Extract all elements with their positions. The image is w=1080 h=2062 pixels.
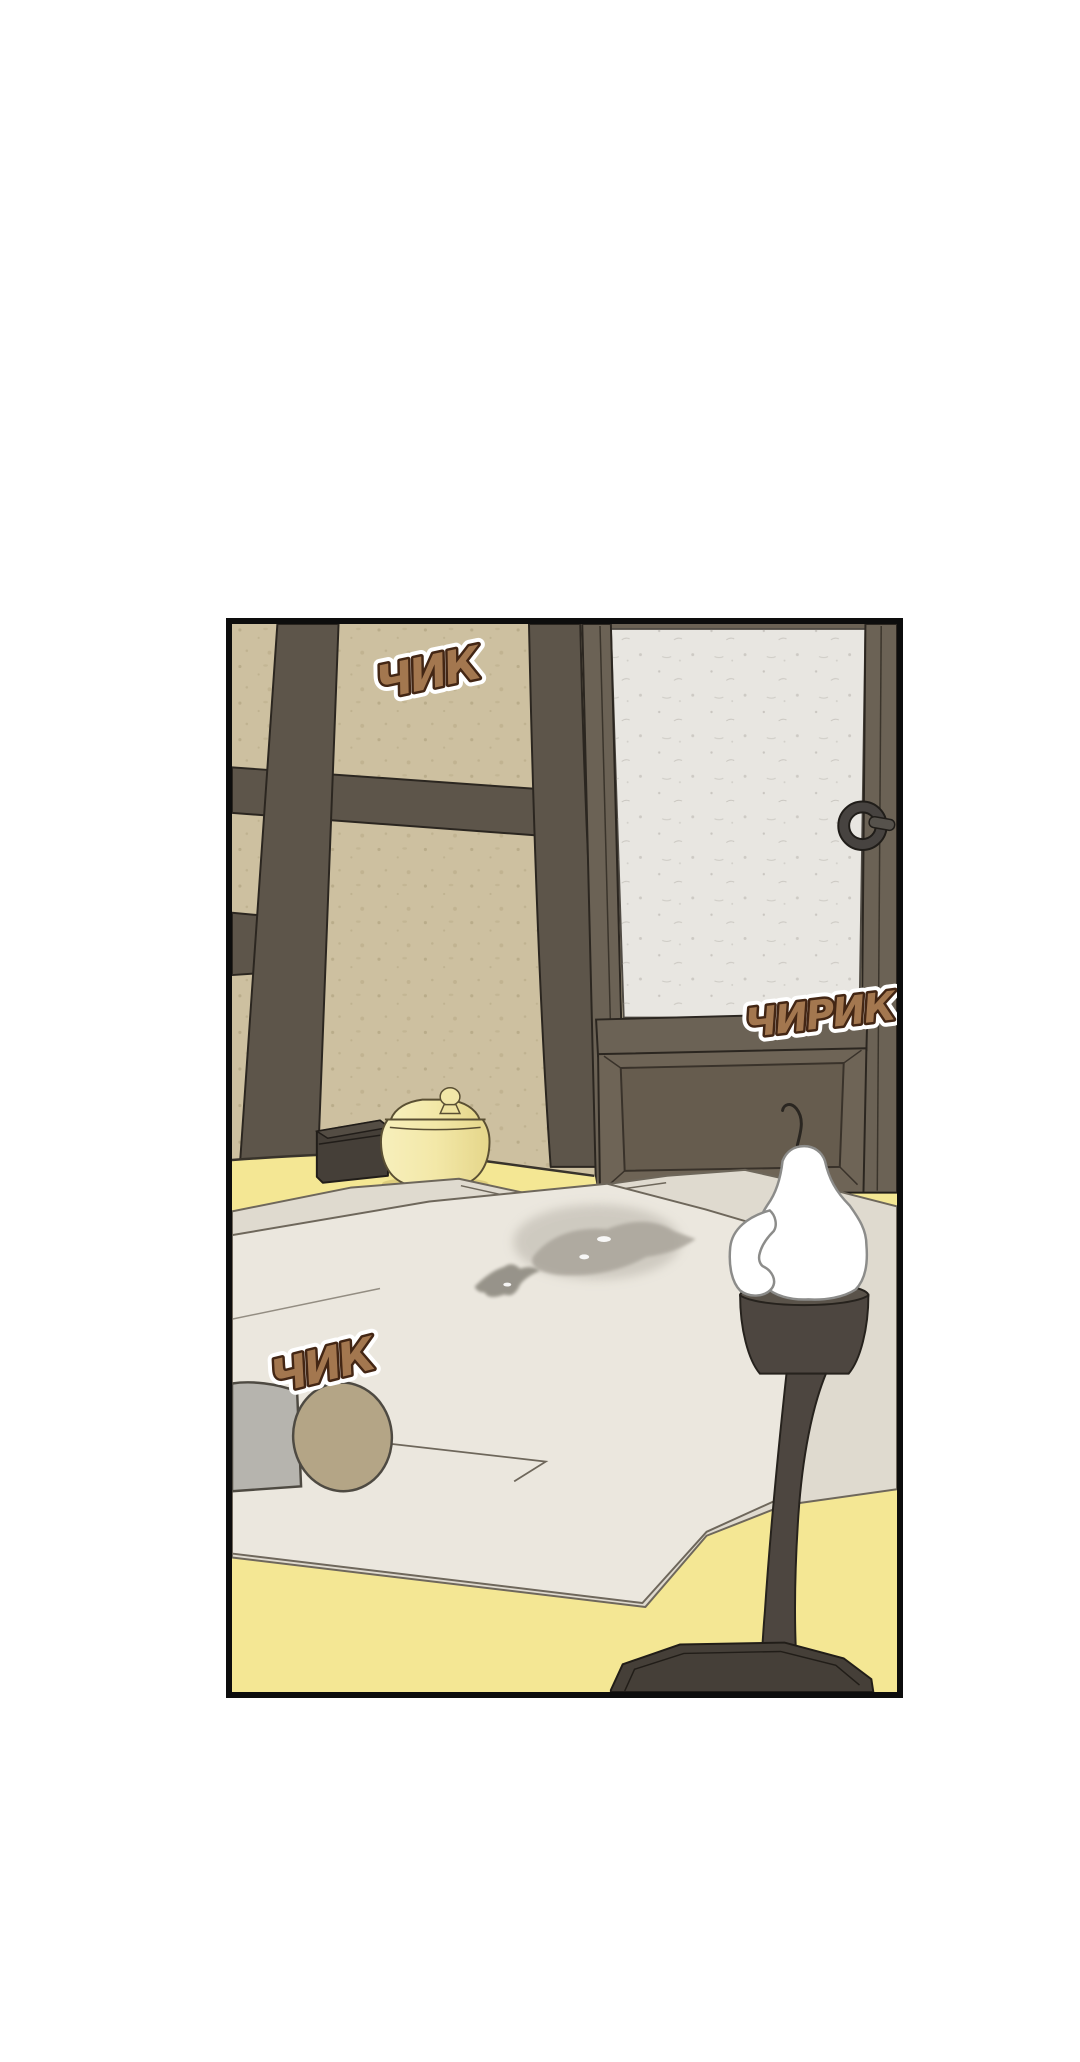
jar-knob-ball	[440, 1088, 460, 1106]
panel-illustration: ЧИК ЧИК ЧИРИК ЧИРИК ЧИК ЧИК	[232, 624, 897, 1692]
door-paper-texture	[611, 629, 866, 1018]
jar-knob-base	[440, 1105, 460, 1114]
stain-glint	[597, 1236, 611, 1242]
paper-sliding-door	[582, 624, 897, 1194]
comic-panel: ЧИК ЧИК ЧИРИК ЧИРИК ЧИК ЧИК	[226, 618, 903, 1698]
stain-glint	[503, 1283, 511, 1287]
stain-glint	[579, 1254, 589, 1259]
cylindrical-pillow	[232, 1378, 397, 1497]
stand-cup	[740, 1295, 868, 1373]
wooden-storage-box	[317, 1120, 389, 1182]
page-background: ЧИК ЧИК ЧИРИК ЧИРИК ЧИК ЧИК	[0, 0, 1080, 2062]
